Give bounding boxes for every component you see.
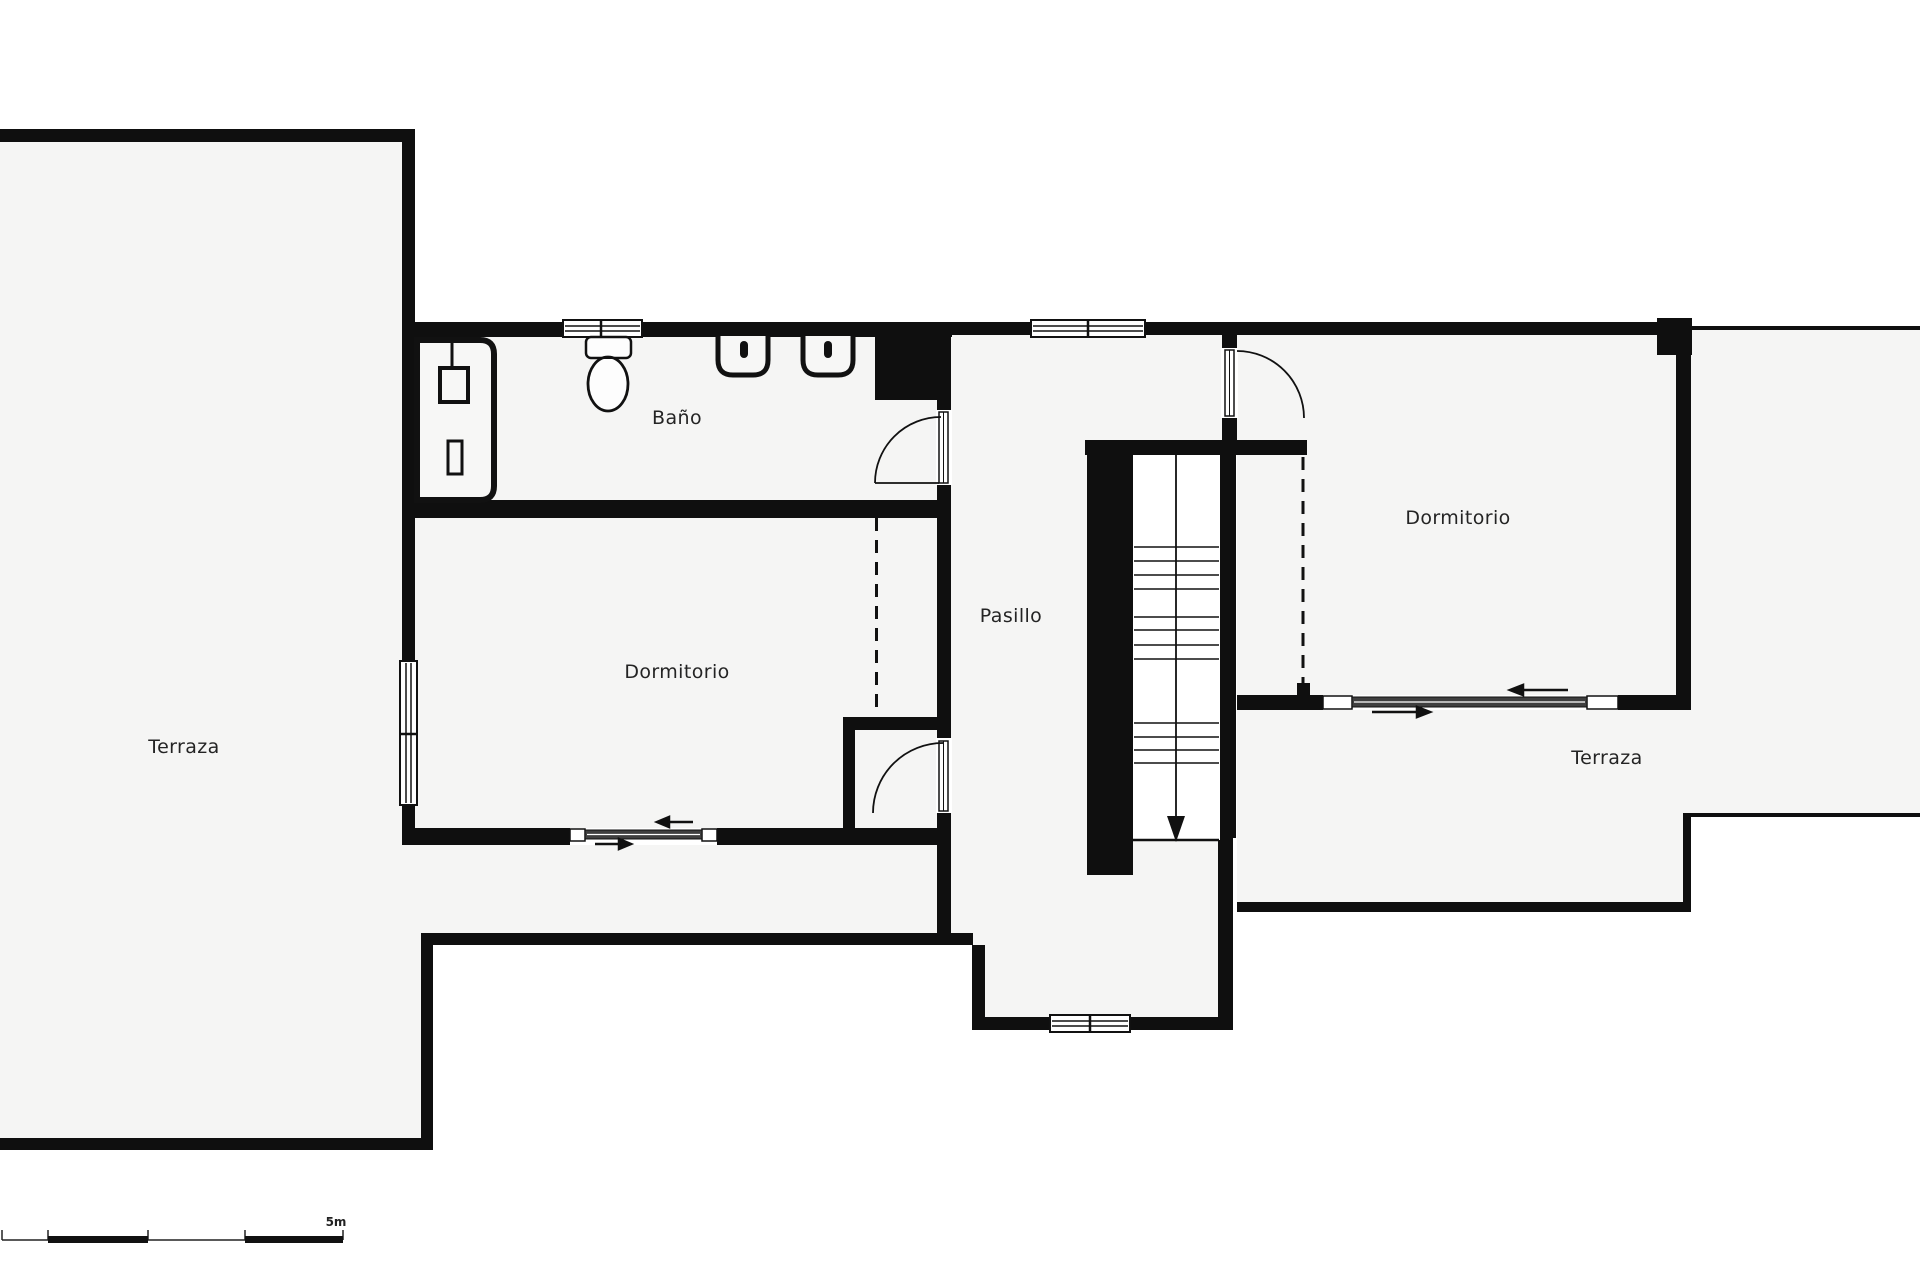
room-label-terraza-left: Terraza (148, 736, 219, 758)
scale-bar (2, 1230, 343, 1243)
terraza-right-floor-east (1691, 330, 1920, 813)
scale-bar-label: 5m (326, 1215, 347, 1229)
room-label-terraza-right: Terraza (1571, 747, 1642, 769)
terraza-right-floor-south (1237, 710, 1691, 902)
window-dormitorio-left-west (400, 661, 417, 805)
shower-enclosure-icon (417, 339, 494, 500)
room-label-pasillo: Pasillo (980, 605, 1042, 627)
duct-column (875, 322, 950, 400)
floor-plan: Terraza Baño Dormitorio Pasillo Dormitor… (0, 0, 1920, 1280)
window-pasillo-top (1031, 320, 1145, 337)
window-bano (563, 320, 642, 337)
window-pasillo-bottom (1050, 1015, 1130, 1032)
room-label-dormitorio-left: Dormitorio (624, 661, 729, 683)
staircase (1133, 455, 1220, 842)
sink-icon (803, 336, 853, 375)
floor-areas (0, 142, 1920, 1138)
room-label-bano: Baño (652, 407, 702, 429)
sink-icon (718, 336, 768, 375)
toilet-icon (586, 337, 631, 411)
floor-plan-drawing (0, 0, 1920, 1280)
room-label-dormitorio-right: Dormitorio (1405, 507, 1510, 529)
